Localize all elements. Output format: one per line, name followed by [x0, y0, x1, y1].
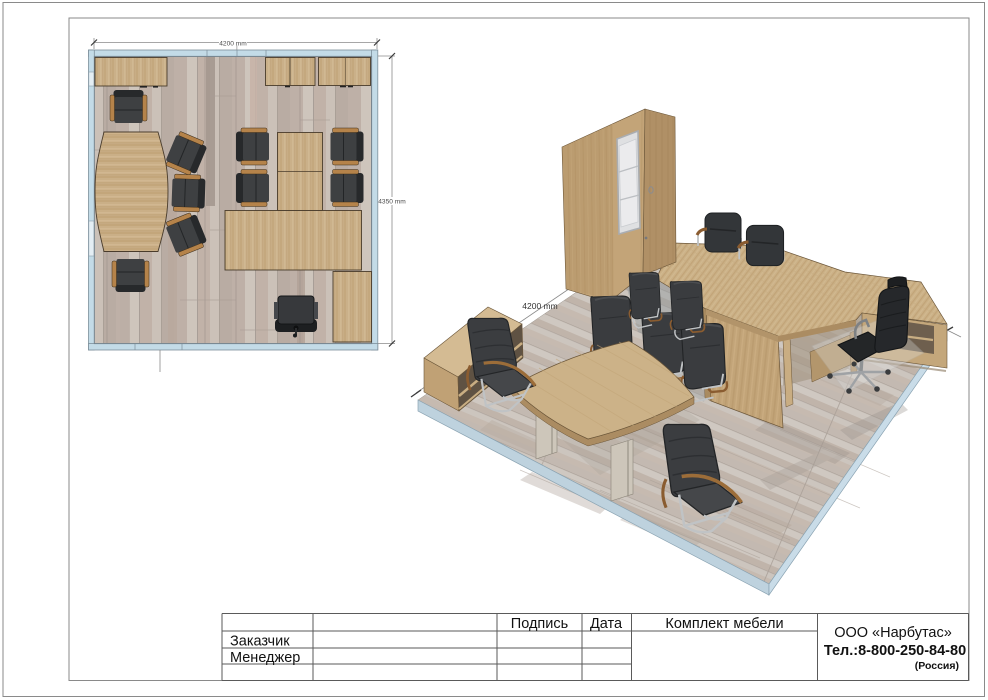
- svg-text:4200 mm: 4200 mm: [522, 301, 557, 311]
- svg-text:Подпись: Подпись: [511, 616, 568, 632]
- svg-text:Дата: Дата: [590, 616, 623, 632]
- svg-text:Менеджер: Менеджер: [230, 650, 300, 666]
- svg-text:ООО «Нарбутас»: ООО «Нарбутас»: [834, 625, 952, 641]
- svg-text:(Россия): (Россия): [915, 660, 959, 672]
- svg-text:Заказчик: Заказчик: [230, 634, 290, 650]
- svg-text:4350 mm: 4350 mm: [378, 198, 406, 205]
- svg-text:4200 mm: 4200 mm: [219, 40, 247, 47]
- svg-text:Тел.:8-800-250-84-80: Тел.:8-800-250-84-80: [824, 643, 966, 659]
- svg-text:Комплект мебели: Комплект мебели: [665, 616, 783, 632]
